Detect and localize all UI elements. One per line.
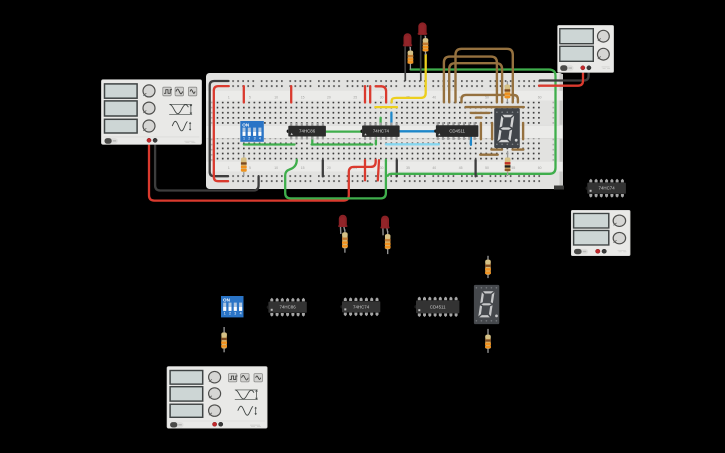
svg-text:2: 2 [229,312,231,316]
svg-text:74HC86: 74HC86 [280,305,297,310]
svg-text:10: 10 [274,166,278,170]
svg-text:CD4511: CD4511 [449,129,465,134]
svg-text:45: 45 [459,166,463,170]
svg-text:ON: ON [242,123,250,128]
svg-text:CD4511: CD4511 [430,304,446,309]
svg-text:40: 40 [432,166,436,170]
svg-text:1: 1 [243,137,245,141]
svg-text:20: 20 [327,95,331,99]
svg-text:30: 30 [380,95,384,99]
svg-text:74HC74: 74HC74 [353,304,370,309]
svg-text:74HC74: 74HC74 [373,129,390,134]
svg-text:1: 1 [228,166,230,170]
svg-text:30: 30 [380,166,384,170]
svg-text:74HC86: 74HC86 [299,129,316,134]
svg-text:ON: ON [223,298,231,303]
svg-text:15: 15 [301,166,305,170]
svg-text:5: 5 [249,95,251,99]
svg-text:25: 25 [353,95,357,99]
svg-text:74HC74: 74HC74 [599,186,616,191]
svg-text:60: 60 [538,166,542,170]
svg-text:60: 60 [538,95,542,99]
svg-text:1: 1 [228,95,230,99]
svg-text:50: 50 [485,166,489,170]
svg-text:5: 5 [249,166,251,170]
svg-text:4: 4 [259,137,261,141]
svg-text:40: 40 [432,95,436,99]
svg-text:2: 2 [248,137,250,141]
svg-text:35: 35 [406,166,410,170]
svg-text:15: 15 [301,95,305,99]
svg-text:55: 55 [512,166,516,170]
svg-text:20: 20 [327,166,331,170]
svg-text:10: 10 [274,95,278,99]
svg-text:3: 3 [254,137,256,141]
svg-text:4: 4 [240,312,242,316]
svg-text:3: 3 [234,312,236,316]
svg-text:1: 1 [224,312,226,316]
